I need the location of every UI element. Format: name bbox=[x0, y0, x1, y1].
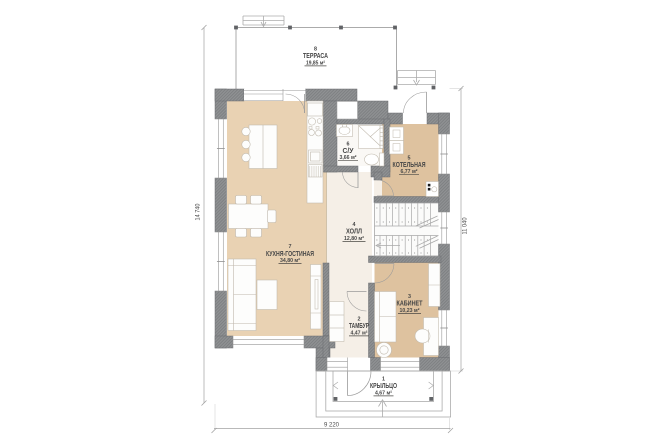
svg-text:12,80 м²: 12,80 м² bbox=[344, 235, 364, 242]
svg-text:6,77 м²: 6,77 м² bbox=[401, 168, 418, 175]
svg-text:7: 7 bbox=[289, 244, 292, 250]
svg-text:4,67 м²: 4,67 м² bbox=[375, 389, 392, 396]
svg-text:ХОЛЛ: ХОЛЛ bbox=[346, 229, 362, 236]
svg-text:8: 8 bbox=[314, 47, 317, 53]
svg-text:9 220: 9 220 bbox=[324, 423, 340, 429]
svg-text:11 040: 11 040 bbox=[462, 217, 468, 235]
svg-text:34,80 м²: 34,80 м² bbox=[280, 257, 300, 264]
svg-text:3,66 м²: 3,66 м² bbox=[340, 154, 357, 161]
svg-text:14 740: 14 740 bbox=[196, 203, 202, 221]
svg-text:ТЕРРАСА: ТЕРРАСА bbox=[303, 53, 328, 60]
svg-text:5: 5 bbox=[408, 155, 411, 161]
svg-text:КОТЕЛЬНАЯ: КОТЕЛЬНАЯ bbox=[393, 162, 426, 169]
svg-text:19,85 м²: 19,85 м² bbox=[306, 59, 325, 66]
svg-text:3: 3 bbox=[408, 294, 411, 300]
svg-text:КРЫЛЬЦО: КРЫЛЬЦО bbox=[370, 383, 397, 390]
svg-text:КУХНЯ-ГОСТИНАЯ: КУХНЯ-ГОСТИНАЯ bbox=[266, 251, 314, 258]
svg-text:С/У: С/У bbox=[343, 148, 355, 155]
svg-text:6: 6 bbox=[347, 141, 350, 147]
svg-text:2: 2 bbox=[358, 317, 361, 323]
svg-text:КАБИНЕТ: КАБИНЕТ bbox=[397, 301, 424, 308]
svg-text:4: 4 bbox=[353, 222, 356, 228]
svg-text:ТАМБУР: ТАМБУР bbox=[349, 323, 369, 330]
svg-text:10,23 м²: 10,23 м² bbox=[400, 307, 420, 314]
svg-text:1: 1 bbox=[382, 377, 385, 383]
svg-text:4,47 м²: 4,47 м² bbox=[351, 329, 368, 336]
